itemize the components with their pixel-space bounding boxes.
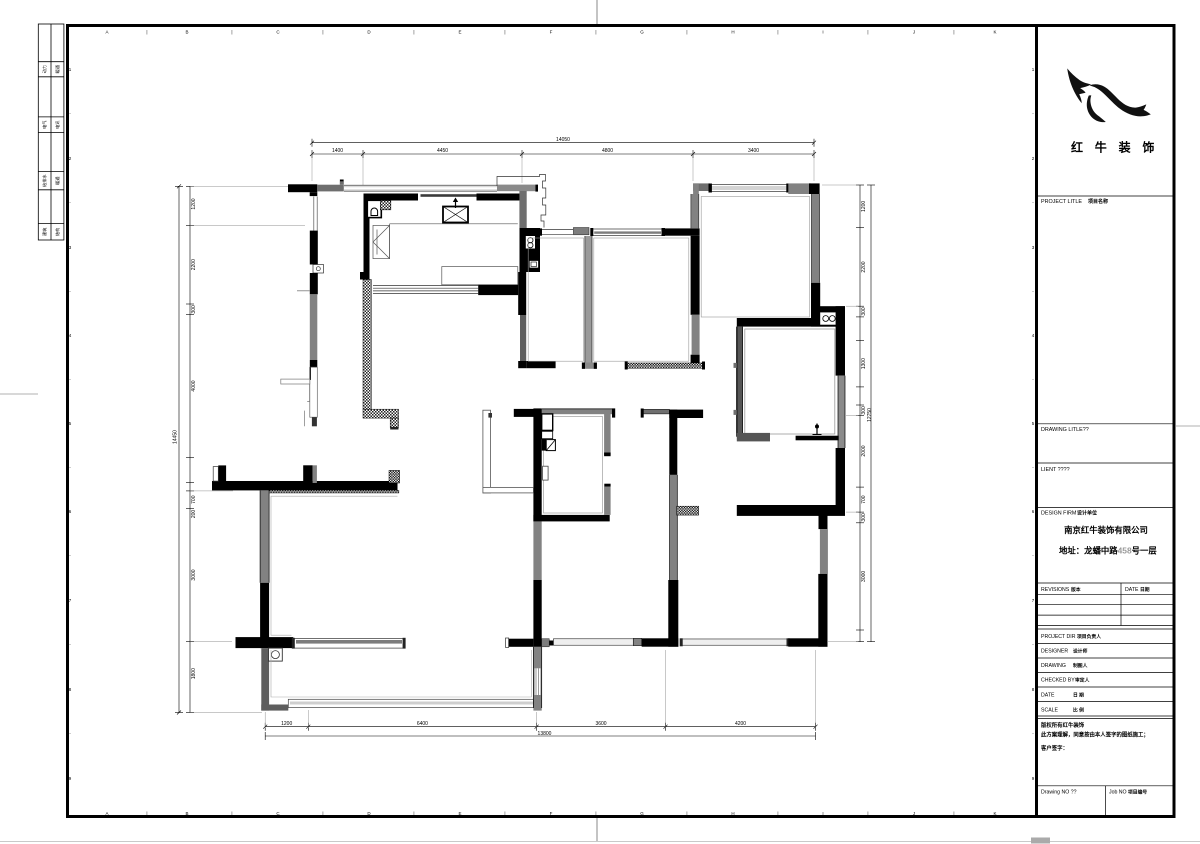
svg-text:G: G: [640, 811, 644, 816]
svg-text:给排水: 给排水: [41, 174, 48, 187]
svg-text:|: |: [867, 811, 868, 816]
svg-text:|: |: [504, 811, 505, 816]
svg-text:300: 300: [191, 305, 197, 314]
svg-text:DRAWING LITLE??: DRAWING LITLE??: [1041, 427, 1089, 433]
svg-text:DATE: DATE: [1125, 587, 1139, 593]
svg-text:项目负责人: 项目负责人: [1077, 633, 1101, 640]
svg-text:4800: 4800: [602, 148, 613, 154]
svg-text:700: 700: [191, 495, 197, 504]
svg-text:项目编号: 项目编号: [1128, 789, 1147, 796]
svg-text:3600: 3600: [595, 721, 606, 727]
svg-text:DESIGN FIRM: DESIGN FIRM: [1041, 511, 1077, 517]
svg-text:|: |: [322, 30, 323, 35]
svg-text:K: K: [993, 30, 996, 35]
svg-text:版权所有红牛装饰: 版权所有红牛装饰: [1040, 721, 1085, 729]
svg-text:设计师: 设计师: [1073, 648, 1088, 655]
svg-text:|: |: [953, 811, 954, 816]
svg-text:|: |: [686, 30, 687, 35]
svg-text:Drawing NO ??: Drawing NO ??: [1041, 790, 1077, 796]
svg-text:3000: 3000: [861, 571, 867, 582]
svg-text:3000: 3000: [191, 569, 197, 580]
svg-text:客户签字：: 客户签字：: [1041, 744, 1068, 752]
svg-text:13800: 13800: [538, 731, 552, 737]
svg-text:|: |: [146, 811, 147, 816]
svg-text:4000: 4000: [191, 380, 197, 391]
svg-text:|: |: [867, 30, 868, 35]
svg-text:3400: 3400: [748, 148, 759, 154]
svg-text:|: |: [953, 30, 954, 35]
svg-text:2200: 2200: [861, 261, 867, 272]
svg-text:E: E: [458, 30, 461, 35]
svg-text:REVISIONS: REVISIONS: [1041, 587, 1070, 593]
svg-text:审定人: 审定人: [1075, 677, 1090, 684]
svg-text:A: A: [105, 30, 108, 35]
svg-text:结构: 结构: [54, 228, 61, 236]
svg-text:2000: 2000: [861, 445, 867, 456]
svg-text:设计单位: 设计单位: [1077, 510, 1097, 517]
svg-text:日 期: 日 期: [1073, 692, 1084, 699]
svg-text:F: F: [550, 811, 553, 816]
svg-text:14450: 14450: [173, 430, 179, 444]
svg-text:1200: 1200: [861, 201, 867, 212]
svg-text:F: F: [550, 30, 553, 35]
svg-text:版本: 版本: [1071, 586, 1081, 593]
svg-text:K: K: [993, 811, 996, 816]
svg-text:1200: 1200: [191, 198, 197, 209]
svg-text:DRAWING: DRAWING: [1041, 663, 1066, 669]
svg-text:I: I: [822, 811, 823, 816]
svg-text:2200: 2200: [191, 259, 197, 270]
svg-text:|: |: [686, 811, 687, 816]
svg-text:J: J: [913, 811, 915, 816]
svg-text:此方案理解，同意按由本人签字的图纸施工；: 此方案理解，同意按由本人签字的图纸施工；: [1041, 731, 1149, 739]
svg-text:6400: 6400: [417, 721, 428, 727]
svg-text:SCALE: SCALE: [1041, 708, 1059, 714]
svg-text:E: E: [458, 811, 461, 816]
svg-text:14050: 14050: [556, 137, 570, 143]
svg-text:|: |: [777, 30, 778, 35]
svg-text:红牛装饰: 红牛装饰: [1071, 140, 1166, 155]
svg-text:300: 300: [861, 513, 867, 522]
svg-text:B: B: [185, 811, 188, 816]
svg-text:|: |: [413, 811, 414, 816]
svg-text:|: |: [322, 811, 323, 816]
svg-text:700: 700: [861, 495, 867, 504]
svg-text:|: |: [231, 30, 232, 35]
svg-text:日期: 日期: [1140, 586, 1150, 593]
svg-text:DATE: DATE: [1041, 693, 1055, 699]
svg-text:电讯: 电讯: [54, 120, 61, 129]
svg-text:比 例: 比 例: [1073, 707, 1084, 714]
svg-text:暖通: 暖通: [54, 64, 61, 73]
svg-text:1800: 1800: [191, 668, 197, 679]
svg-text:LIENT ????: LIENT ????: [1041, 467, 1070, 473]
svg-text:|: |: [595, 30, 596, 35]
svg-text:电气: 电气: [41, 120, 47, 129]
svg-text:CHECKED BY: CHECKED BY: [1041, 678, 1075, 684]
svg-text:|: |: [595, 811, 596, 816]
svg-text:1200: 1200: [281, 721, 292, 727]
svg-text:12750: 12750: [867, 408, 873, 422]
svg-text:动力: 动力: [41, 65, 48, 73]
svg-text:300: 300: [861, 307, 867, 316]
svg-text:|: |: [504, 30, 505, 35]
svg-text:南京红牛装饰有限公司: 南京红牛装饰有限公司: [1064, 525, 1148, 535]
svg-text:地址：龙蟠中路458号一层: 地址：龙蟠中路458号一层: [1059, 546, 1157, 556]
svg-text:I: I: [822, 30, 823, 35]
svg-text:4200: 4200: [735, 721, 746, 727]
svg-text:H: H: [731, 30, 734, 35]
svg-text:PROJECT DIR: PROJECT DIR: [1041, 634, 1076, 640]
svg-text:J: J: [913, 30, 915, 35]
svg-text:|: |: [413, 30, 414, 35]
svg-text:A: A: [105, 811, 108, 816]
svg-text:DESIGNER: DESIGNER: [1041, 649, 1068, 655]
svg-text:建筑: 建筑: [41, 227, 48, 236]
svg-text:1300: 1300: [861, 358, 867, 369]
svg-text:4450: 4450: [437, 148, 448, 154]
svg-text:200: 200: [191, 510, 197, 519]
svg-text:项目名称: 项目名称: [1088, 198, 1108, 205]
svg-text:G: G: [640, 30, 644, 35]
svg-text:H: H: [731, 811, 734, 816]
svg-text:|: |: [146, 30, 147, 35]
svg-text:|: |: [777, 811, 778, 816]
svg-text:PROJECT LITLE: PROJECT LITLE: [1041, 199, 1082, 205]
svg-text:1400: 1400: [332, 148, 343, 154]
svg-text:制图人: 制图人: [1073, 662, 1088, 669]
svg-text:暖通: 暖通: [54, 176, 61, 185]
svg-text:Job NO: Job NO: [1109, 790, 1127, 796]
svg-text:B: B: [185, 30, 188, 35]
svg-text:|: |: [231, 811, 232, 816]
